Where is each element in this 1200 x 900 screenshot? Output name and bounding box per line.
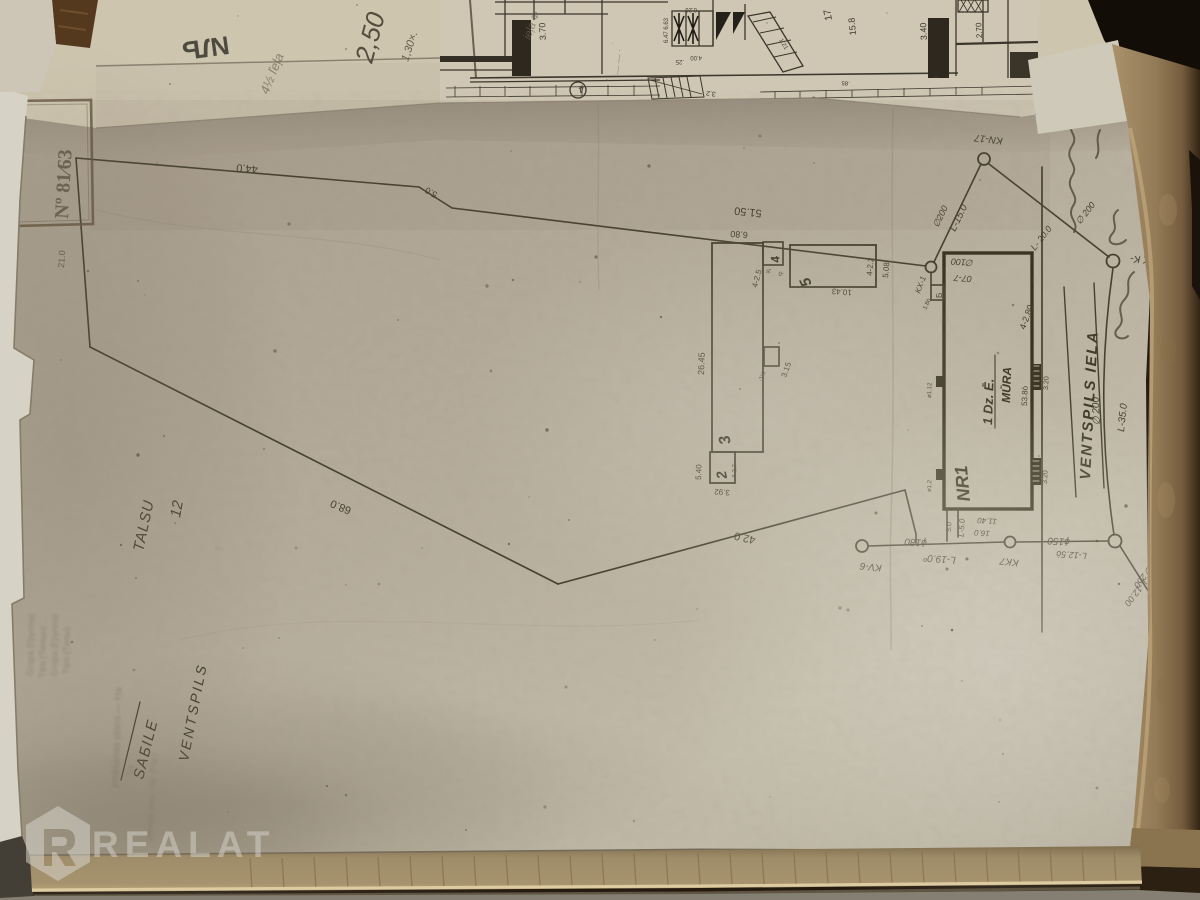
svg-text:5.0: 5.0	[946, 522, 953, 532]
svg-text:ϕ180: ϕ180	[904, 535, 927, 548]
svg-text:10.43: 10.43	[831, 287, 852, 297]
svg-text:.85: .85	[841, 79, 851, 86]
svg-text:3.70: 3.70	[537, 22, 548, 40]
svg-text:07-7: 07-7	[952, 273, 972, 284]
svg-text:∅100: ∅100	[951, 256, 975, 268]
svg-text:Grupa (Группа): Grupa (Группа)	[25, 614, 36, 676]
svg-text:KK7: KK7	[999, 555, 1020, 568]
svg-text:11.40: 11.40	[977, 516, 998, 526]
svg-text:ø1.12: ø1.12	[927, 382, 934, 398]
svg-text:1 Dz. Ē.: 1 Dz. Ē.	[980, 378, 997, 425]
svg-text:NR1: NR1	[951, 465, 974, 503]
svg-text:MŪRA: MŪRA	[999, 367, 1014, 403]
svg-text:3.40: 3.40	[918, 22, 929, 40]
svg-text:54: 54	[125, 764, 136, 775]
svg-text:Тips (Типы): Тips (Типы)	[61, 627, 72, 674]
svg-text:6.80: 6.80	[730, 229, 748, 240]
svg-text:16.0: 16.0	[973, 528, 990, 538]
svg-text:Б: Б	[935, 293, 944, 298]
svg-text:4.00: 4.00	[690, 54, 702, 60]
svg-text:L-12.5ò: L-12.5ò	[1056, 549, 1087, 561]
svg-text:.25: .25	[675, 58, 684, 64]
svg-text:L-19.0º: L-19.0º	[922, 552, 956, 565]
svg-text:0.26: 0.26	[685, 6, 697, 12]
svg-text:2.70: 2.70	[974, 22, 984, 39]
svg-text:21.0: 21.0	[56, 250, 67, 268]
svg-text:REALAT: REALAT	[92, 824, 275, 865]
svg-text:4-2.7: 4-2.7	[732, 464, 738, 479]
svg-text:26.45: 26.45	[696, 352, 707, 375]
svg-text:53.8ò: 53.8ò	[1020, 385, 1030, 406]
svg-text:15.8: 15.8	[847, 17, 858, 35]
svg-text:5.40: 5.40	[694, 464, 704, 480]
svg-text:Тips (Типын)…: Тips (Типын)…	[37, 617, 48, 678]
svg-text:ø1.2: ø1.2	[927, 479, 933, 492]
svg-text:3.20: 3.20	[1043, 376, 1050, 390]
svg-text:KV-6: KV-6	[859, 560, 882, 573]
svg-text:5.08: 5.08	[881, 261, 891, 278]
svg-text:3.2: 3.2	[706, 89, 717, 97]
svg-text:Grupa (Группа): Grupa (Группа)	[49, 614, 60, 676]
svg-text:ϕ150: ϕ150	[1047, 534, 1070, 547]
svg-text:L-5.0: L-5.0	[957, 518, 967, 537]
svg-text:6.47 6.63: 6.47 6.63	[664, 17, 670, 43]
svg-text:44.0: 44.0	[236, 161, 258, 175]
svg-text:3.20: 3.20	[1042, 470, 1049, 484]
svg-text:4-2.2: 4-2.2	[865, 257, 876, 276]
svg-text:Nº 81⁄63: Nº 81⁄63	[51, 149, 77, 219]
svg-text:3.92: 3.92	[713, 487, 730, 497]
